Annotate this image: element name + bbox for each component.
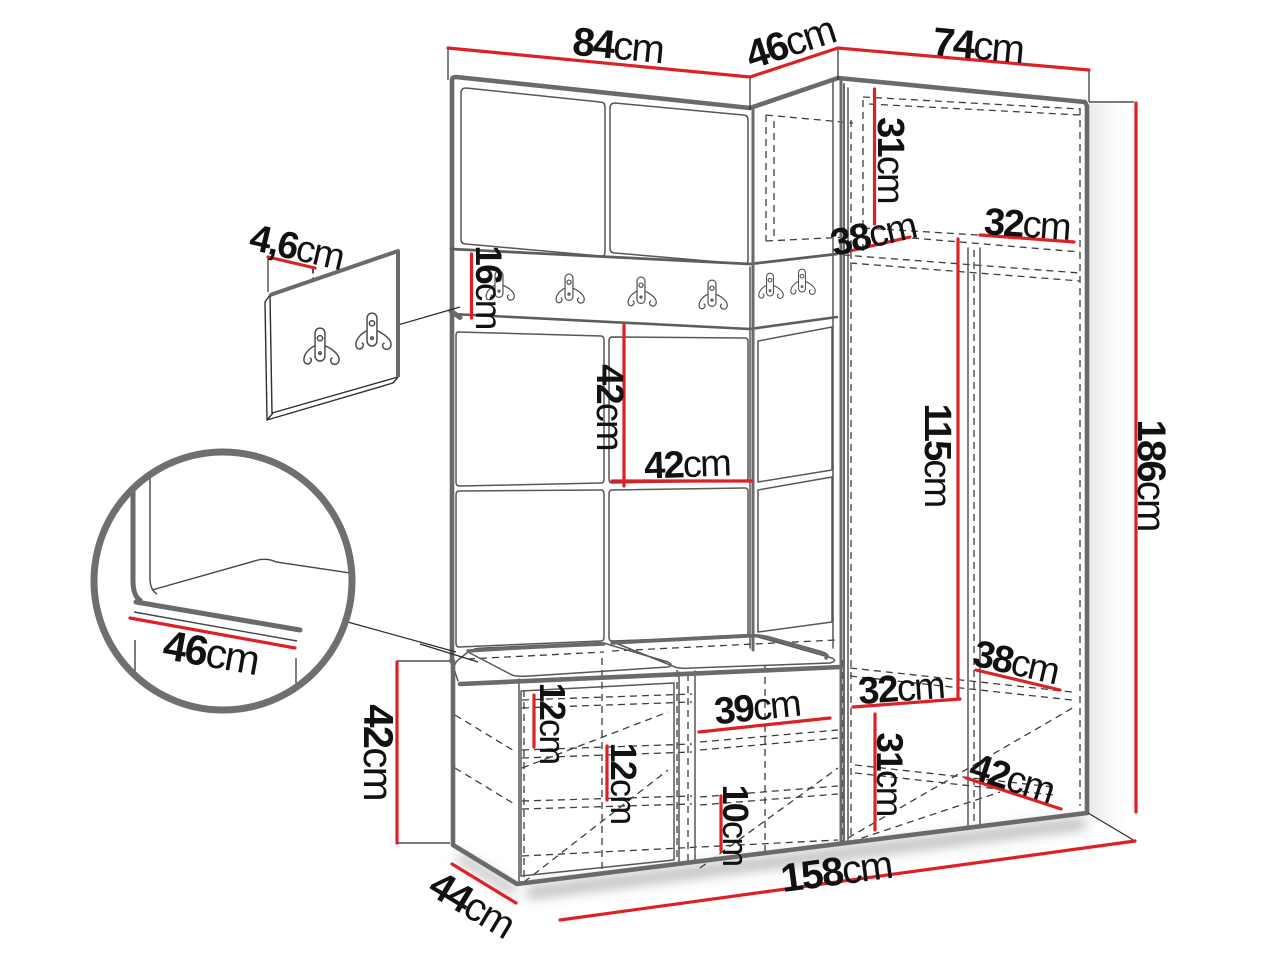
svg-text:115cm: 115cm <box>916 404 958 507</box>
svg-text:84cm: 84cm <box>571 20 665 72</box>
svg-text:10cm: 10cm <box>715 785 756 866</box>
svg-text:32cm: 32cm <box>983 201 1072 249</box>
svg-text:12cm: 12cm <box>603 743 644 824</box>
svg-text:39cm: 39cm <box>712 683 802 734</box>
svg-text:32cm: 32cm <box>857 665 946 713</box>
svg-text:31cm: 31cm <box>869 117 911 203</box>
svg-text:42cm: 42cm <box>588 364 630 450</box>
svg-text:74cm: 74cm <box>931 20 1025 72</box>
svg-text:186cm: 186cm <box>1129 419 1173 530</box>
svg-text:42cm: 42cm <box>643 443 730 488</box>
svg-text:42cm: 42cm <box>355 704 402 800</box>
svg-text:12cm: 12cm <box>532 683 573 764</box>
svg-text:16cm: 16cm <box>468 245 509 328</box>
svg-text:31cm: 31cm <box>869 732 910 815</box>
